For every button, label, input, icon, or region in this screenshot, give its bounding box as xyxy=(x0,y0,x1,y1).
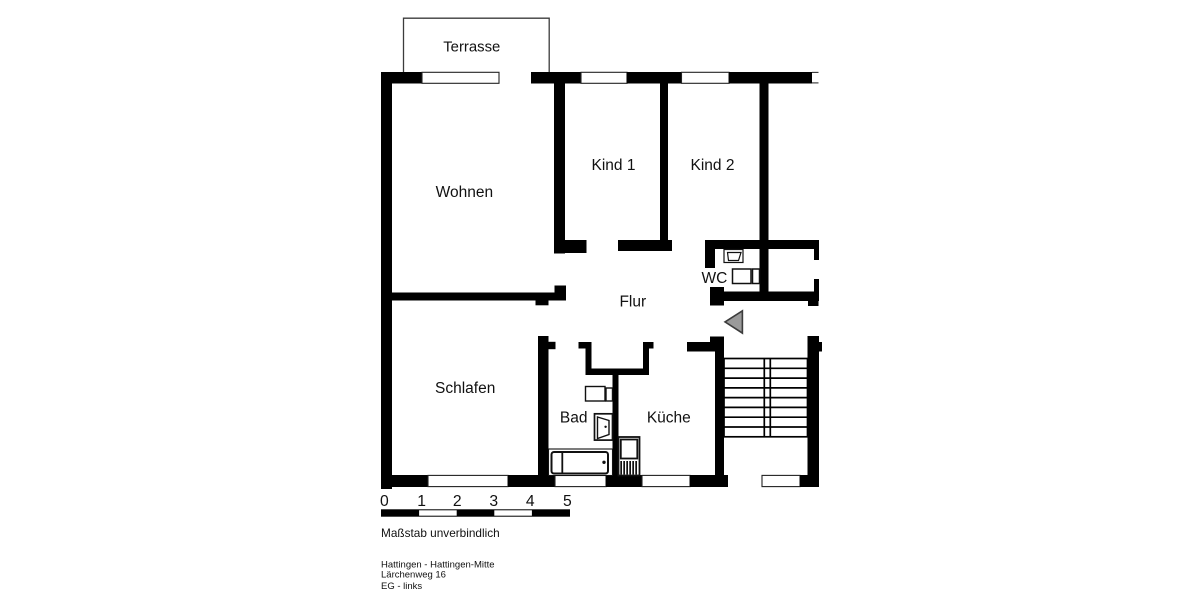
svg-text:EG - links: EG - links xyxy=(381,581,422,592)
svg-text:Bad: Bad xyxy=(560,409,588,426)
svg-text:0: 0 xyxy=(380,493,389,510)
svg-text:Lärchenweg 16: Lärchenweg 16 xyxy=(381,570,446,581)
svg-text:Küche: Küche xyxy=(647,409,691,426)
svg-text:1: 1 xyxy=(417,493,426,510)
svg-text:4: 4 xyxy=(526,493,535,510)
svg-text:Maßstab unverbindlich: Maßstab unverbindlich xyxy=(381,526,500,540)
svg-text:Terrasse: Terrasse xyxy=(443,39,500,55)
svg-text:Schlafen: Schlafen xyxy=(435,380,495,397)
svg-text:Kind 1: Kind 1 xyxy=(592,157,636,174)
svg-text:Kind 2: Kind 2 xyxy=(691,157,735,174)
svg-text:2: 2 xyxy=(453,493,462,510)
svg-text:Hattingen - Hattingen-Mitte: Hattingen - Hattingen-Mitte xyxy=(381,559,495,570)
svg-text:Wohnen: Wohnen xyxy=(436,184,493,201)
svg-text:Flur: Flur xyxy=(619,294,646,311)
svg-text:3: 3 xyxy=(489,493,498,510)
svg-text:WC: WC xyxy=(702,270,728,287)
svg-text:5: 5 xyxy=(563,493,572,510)
